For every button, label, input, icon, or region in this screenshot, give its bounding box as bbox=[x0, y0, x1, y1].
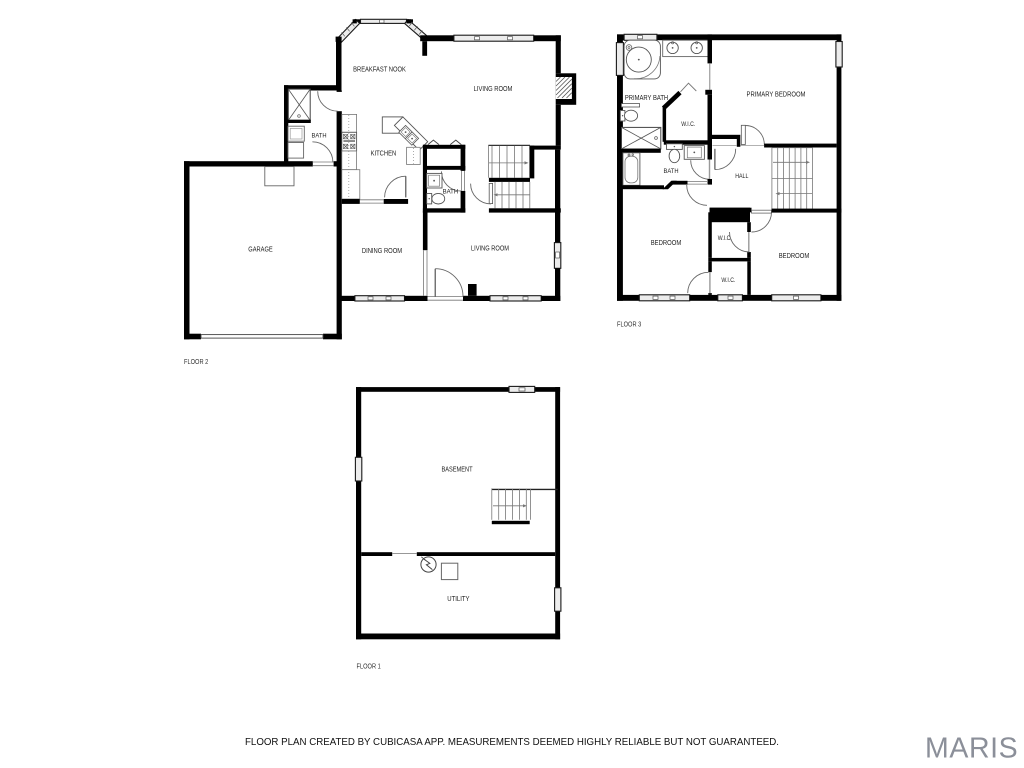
svg-text:LIVING ROOM: LIVING ROOM bbox=[471, 243, 509, 252]
svg-text:FLOOR 2: FLOOR 2 bbox=[184, 359, 208, 366]
svg-text:HALL: HALL bbox=[735, 173, 749, 180]
svg-text:FLOOR 1: FLOOR 1 bbox=[357, 664, 381, 671]
svg-text:BATH: BATH bbox=[443, 188, 459, 195]
svg-text:KITCHEN: KITCHEN bbox=[371, 149, 397, 158]
svg-text:BATH: BATH bbox=[312, 132, 327, 139]
svg-text:DINING ROOM: DINING ROOM bbox=[362, 246, 402, 255]
svg-text:GARAGE: GARAGE bbox=[248, 244, 272, 253]
svg-text:BREAKFAST NOOK: BREAKFAST NOOK bbox=[353, 64, 406, 73]
svg-text:BATH: BATH bbox=[664, 168, 679, 175]
svg-text:BEDROOM: BEDROOM bbox=[651, 238, 682, 247]
svg-text:MARIS: MARIS bbox=[925, 733, 1018, 765]
svg-text:UTILITY: UTILITY bbox=[447, 594, 469, 603]
svg-text:FLOOR 3: FLOOR 3 bbox=[617, 321, 641, 328]
svg-text:W.I.C.: W.I.C. bbox=[718, 235, 732, 242]
svg-text:FLOOR PLAN CREATED BY CUBICASA: FLOOR PLAN CREATED BY CUBICASA APP. MEAS… bbox=[245, 737, 779, 748]
svg-text:BEDROOM: BEDROOM bbox=[779, 251, 810, 260]
svg-text:PRIMARY BEDROOM: PRIMARY BEDROOM bbox=[747, 89, 806, 98]
svg-text:W.I.C.: W.I.C. bbox=[681, 121, 695, 128]
svg-text:W.I.C.: W.I.C. bbox=[721, 277, 735, 284]
svg-text:PRIMARY BATH: PRIMARY BATH bbox=[625, 93, 668, 102]
svg-text:LIVING ROOM: LIVING ROOM bbox=[474, 84, 513, 93]
svg-text:BASEMENT: BASEMENT bbox=[441, 464, 472, 473]
